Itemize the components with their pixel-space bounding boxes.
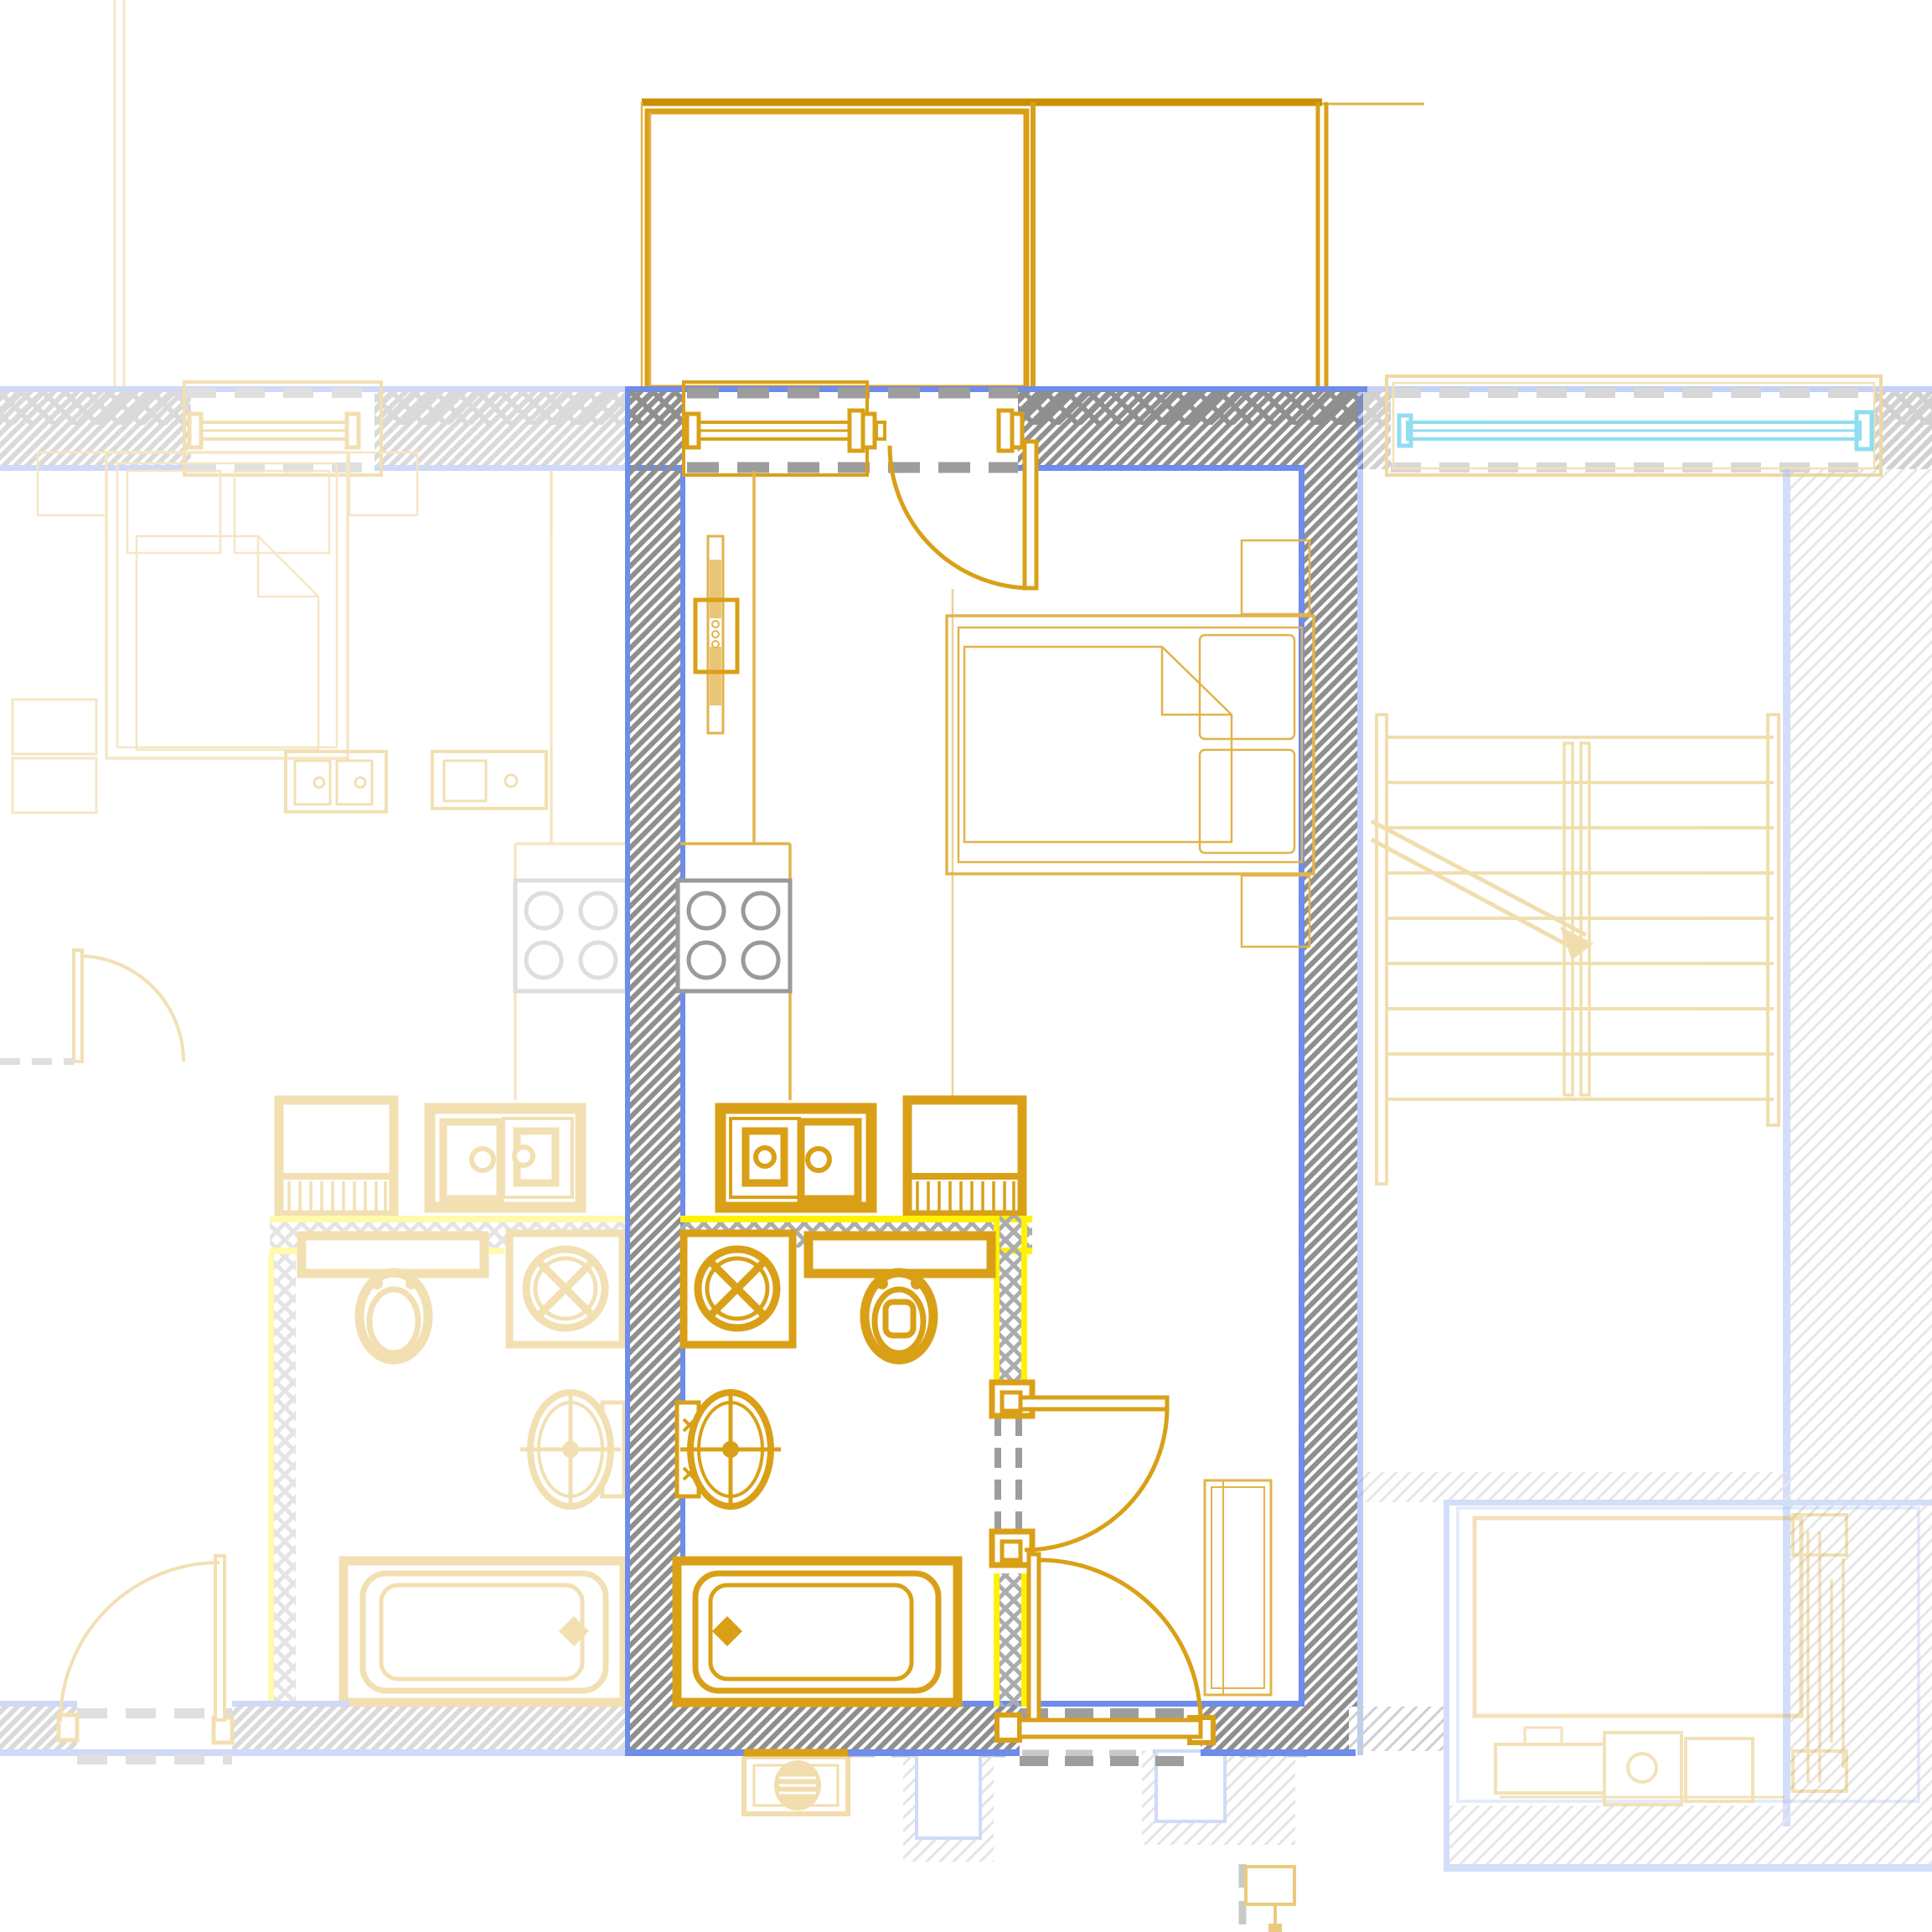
vent-unit (744, 1753, 848, 1814)
bathtub (677, 1561, 958, 1702)
left-washing-machine (509, 1233, 622, 1345)
left-toilet (302, 1236, 484, 1360)
toilet (808, 1236, 991, 1360)
left-stove (515, 881, 627, 991)
pedestal-washbasin (677, 1389, 781, 1510)
stairwell (1372, 715, 1779, 1184)
entry-door (997, 1554, 1213, 1761)
floor-plan-drawing (0, 0, 1932, 1932)
balcony-door (890, 411, 1036, 588)
bathroom-door (992, 1382, 1167, 1565)
left-bed (38, 452, 417, 758)
left-drainer-unit (279, 1100, 394, 1215)
neighbor-right-top (1363, 376, 1932, 475)
balcony (642, 102, 1424, 388)
left-hall-door (0, 950, 183, 1062)
neighbor-left-apartment (0, 0, 633, 1759)
double-bed (947, 616, 1314, 874)
left-bathtub (344, 1561, 624, 1702)
shafts (848, 1751, 1307, 1932)
stair-direction-arrow (1372, 821, 1594, 960)
unit-window (684, 382, 1018, 475)
left-window (184, 382, 381, 475)
left-washbasin (520, 1389, 624, 1510)
left-kitchen-cabinets (13, 700, 546, 813)
left-balcony-edge (115, 0, 124, 386)
wardrobe (1205, 1480, 1271, 1695)
kitchen-sink (721, 1108, 871, 1207)
drainer-unit (907, 1100, 1022, 1215)
left-sink-unit (430, 1108, 581, 1207)
left-counter (515, 471, 627, 1100)
stove (678, 881, 790, 991)
building-right-edge (1357, 469, 1932, 1872)
washing-machine (684, 1233, 793, 1345)
neighbor-cyan-window (1399, 412, 1872, 449)
radiator (695, 536, 737, 733)
stairs (1372, 715, 1779, 1184)
shaft-left (903, 1751, 994, 1862)
main-unit (625, 102, 1444, 1814)
